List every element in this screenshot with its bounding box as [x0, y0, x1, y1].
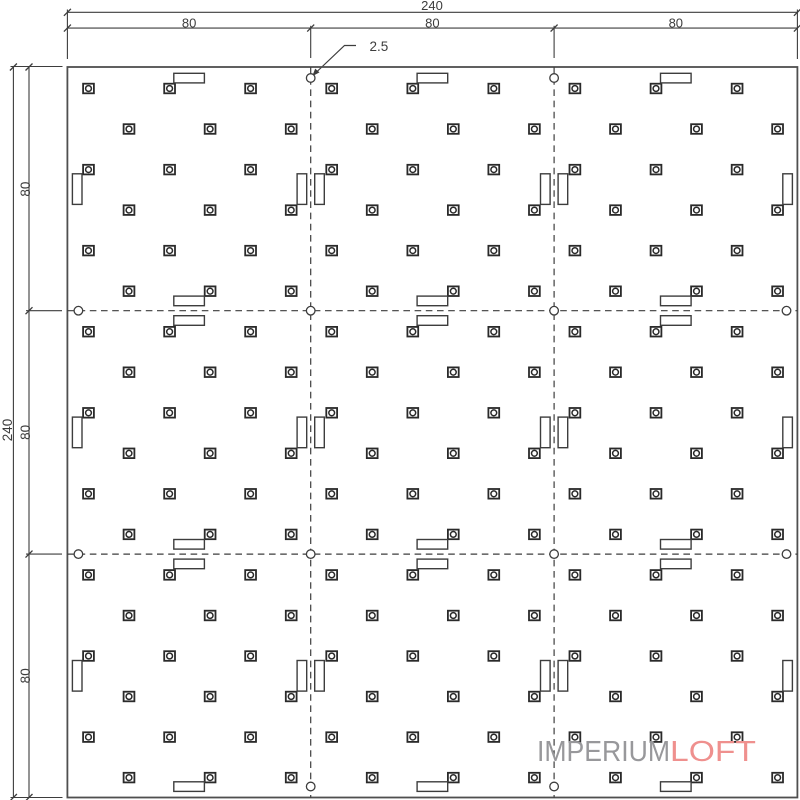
svg-text:80: 80	[669, 15, 683, 30]
svg-text:IMPERIUM: IMPERIUM	[537, 736, 670, 768]
svg-text:80: 80	[18, 668, 33, 683]
svg-text:2.5: 2.5	[370, 39, 389, 54]
svg-text:240: 240	[0, 419, 15, 442]
svg-text:80: 80	[425, 15, 439, 30]
svg-text:240: 240	[421, 0, 443, 13]
svg-text:80: 80	[18, 425, 33, 440]
svg-text:LOFT: LOFT	[670, 736, 756, 768]
svg-text:80: 80	[182, 15, 196, 30]
svg-text:80: 80	[18, 182, 33, 197]
